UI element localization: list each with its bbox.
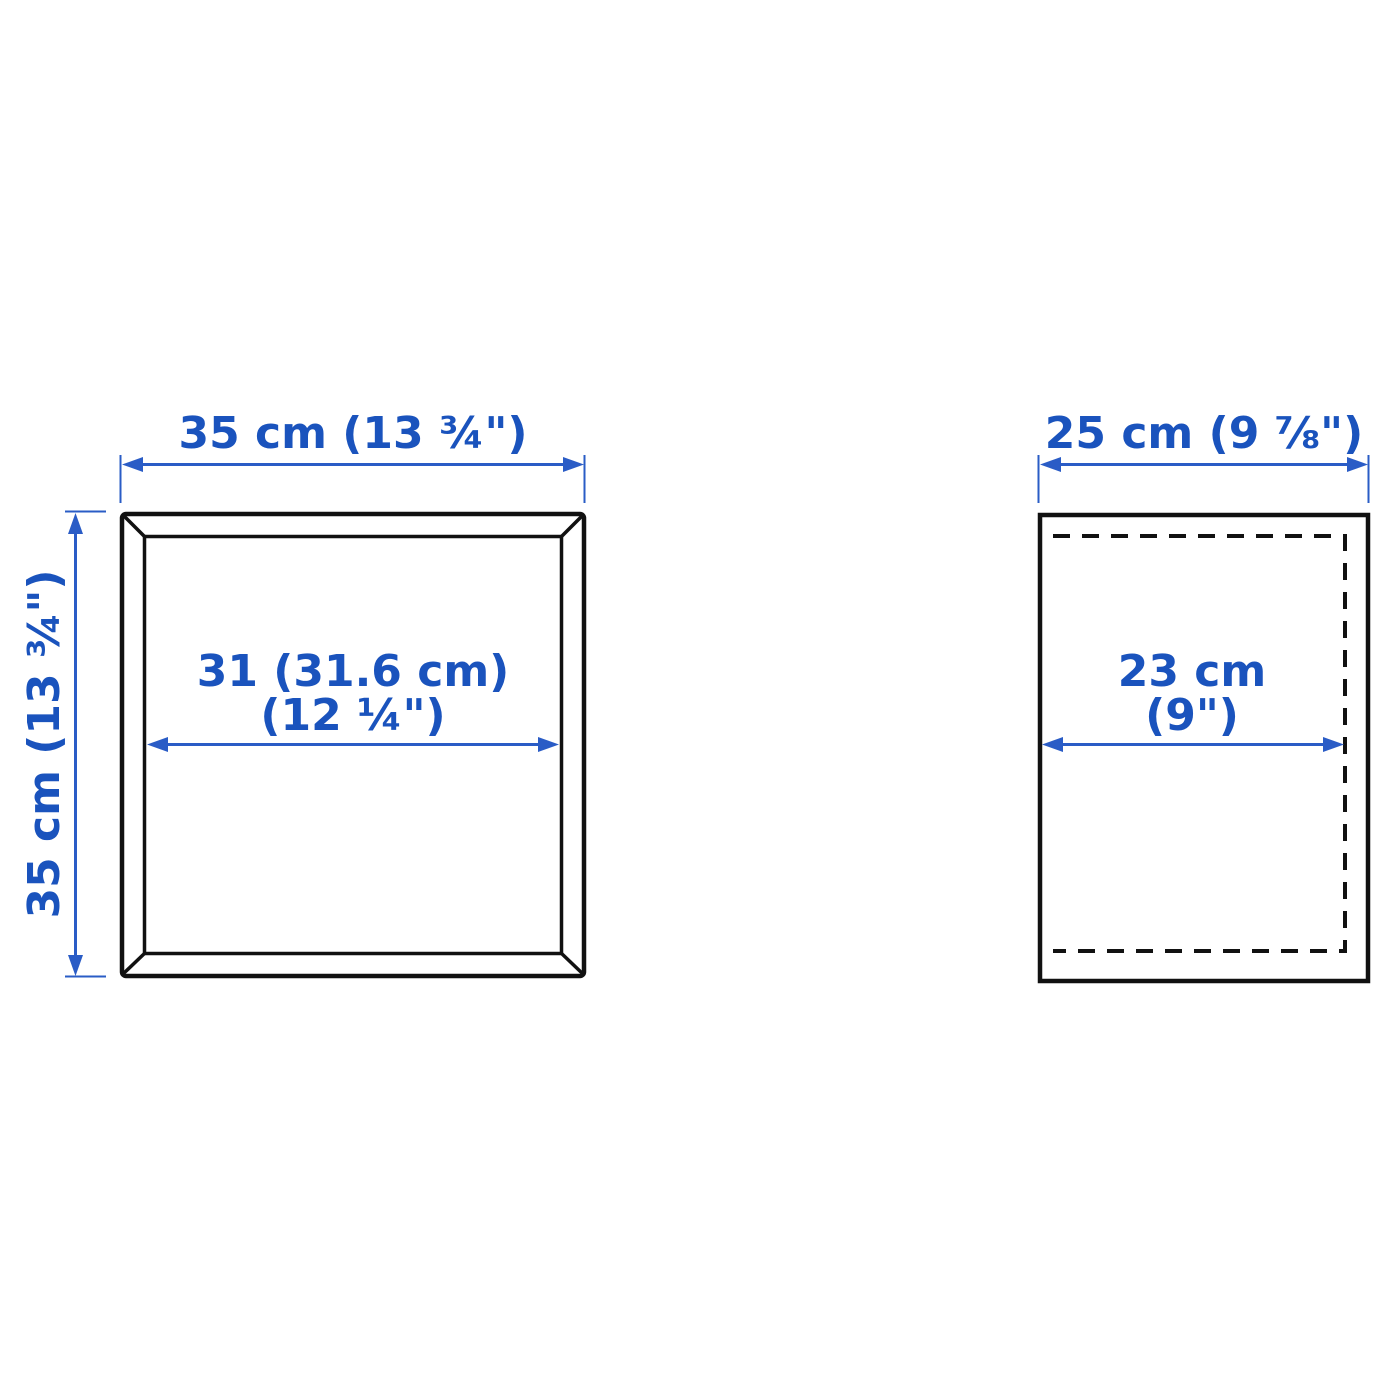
side-depth-dimension bbox=[1039, 455, 1369, 503]
side-panel-outline bbox=[1040, 515, 1368, 981]
front-width-label: 35 cm (13 ¾") bbox=[120, 411, 586, 457]
front-width-dimension bbox=[121, 455, 585, 503]
arrow-left-icon bbox=[1042, 737, 1063, 752]
side-depth-label: 25 cm (9 ⅞") bbox=[1038, 411, 1370, 457]
product-dimension-diagram: 35 cm (13 ¾") 35 cm (13 ¾") 31 (31.6 cm)… bbox=[0, 0, 1400, 1400]
front-inner-width-label: 31 (31.6 cm) (12 ¼") bbox=[147, 650, 559, 738]
arrow-down-icon bbox=[68, 955, 83, 976]
front-height-label: 35 cm (13 ¾") bbox=[22, 511, 68, 977]
front-bevel-bottom-left bbox=[123, 952, 146, 974]
front-height-dimension bbox=[65, 512, 106, 977]
front-bevel-top-left bbox=[123, 515, 146, 538]
arrow-right-icon bbox=[1323, 737, 1344, 752]
side-view-outline bbox=[1040, 515, 1368, 981]
arrow-left-icon bbox=[122, 457, 143, 472]
side-inner-depth-label: 23 cm (9") bbox=[1038, 650, 1346, 738]
arrow-left-icon bbox=[147, 737, 168, 752]
arrow-up-icon bbox=[68, 513, 83, 534]
arrow-right-icon bbox=[538, 737, 559, 752]
front-bevel-top-right bbox=[560, 515, 583, 538]
side-inner-depth-label-line2: (9") bbox=[1145, 690, 1239, 741]
front-inner-width-label-line2: (12 ¼") bbox=[260, 690, 445, 741]
arrow-right-icon bbox=[1347, 457, 1368, 472]
front-bevel-bottom-right bbox=[560, 952, 583, 974]
arrow-left-icon bbox=[1040, 457, 1061, 472]
arrow-right-icon bbox=[563, 457, 584, 472]
